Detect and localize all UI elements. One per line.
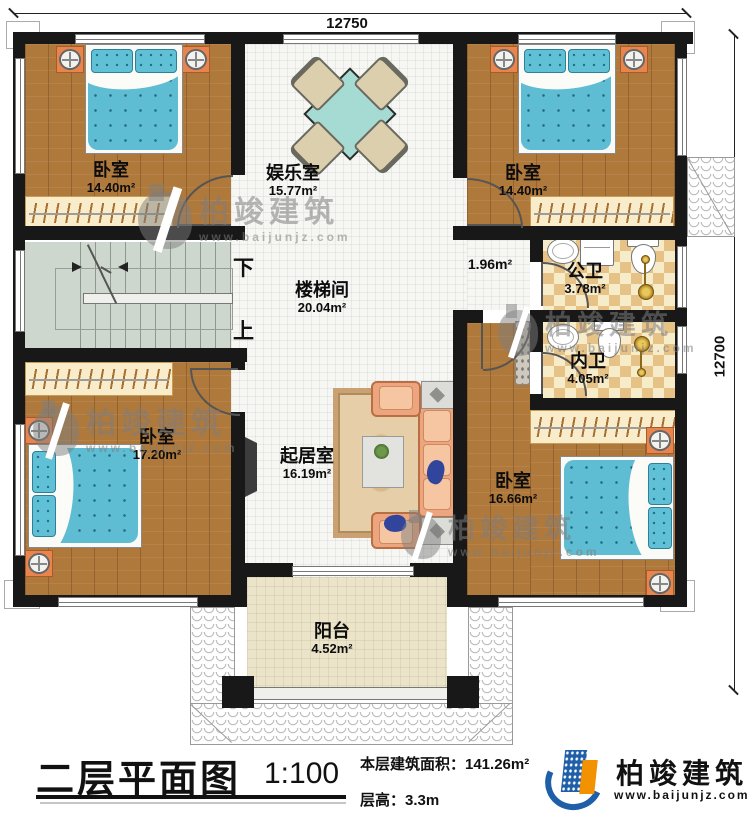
window [677, 246, 687, 308]
window [15, 424, 25, 556]
room-label-balcony: 阳台 4.52m² [272, 622, 392, 656]
title-underline-shadow [40, 802, 346, 804]
room-label-bedroom-br: 卧室 16.66m² [453, 472, 573, 506]
watermark: 柏竣建筑 www.baijunjz.com [138, 191, 351, 249]
sofa-cushion [423, 410, 451, 442]
side-table [421, 381, 454, 409]
room-name: 公卫 [545, 262, 625, 282]
wall-h3 [13, 348, 247, 362]
watermark-text: 柏竣建筑 [448, 516, 600, 543]
window [518, 34, 616, 44]
watermark: 柏竣建筑 www.baijunjz.com [33, 406, 238, 456]
dimension-line-right [734, 34, 735, 690]
window [58, 597, 198, 607]
room-area: 16.19m² [247, 467, 367, 481]
nightstand [182, 46, 210, 73]
watermark-text: 柏竣建筑 [199, 198, 351, 228]
room-name: 阳台 [272, 622, 392, 642]
lamp-icon [59, 49, 81, 70]
bed-bedroom-tl [85, 44, 183, 154]
nightstand [56, 46, 84, 73]
brand-name: 柏竣建筑 [616, 752, 748, 792]
nightstand [620, 46, 648, 73]
room-area: 4.05m² [548, 372, 628, 386]
pillow [568, 49, 610, 73]
room-area: 14.40m² [463, 184, 583, 198]
roof-tiles-balcony-bottom [190, 703, 513, 745]
room-label-bedroom-tr: 卧室 14.40m² [463, 164, 583, 198]
nightstand [490, 46, 518, 73]
balcony-railing [250, 687, 449, 700]
room-area: 3.78m² [545, 282, 625, 296]
sheet-fold [88, 73, 178, 94]
window [75, 34, 205, 44]
blanket [521, 73, 611, 150]
window [677, 58, 687, 156]
shower-stem [644, 262, 646, 284]
sofa-cushion [379, 386, 413, 410]
floor-vestibule-tile [467, 240, 530, 310]
dimension-top-label: 12750 [307, 15, 387, 32]
floor-plan-canvas: 12750 12700 下 上 [0, 0, 750, 818]
watermark-url: www.baijunjz.com [199, 231, 351, 243]
stair-down-label: 下 [233, 252, 254, 282]
toilet-icon [627, 234, 659, 274]
watermark-text: 柏竣建筑 [545, 312, 697, 339]
watermark-logo-icon [33, 406, 79, 456]
closet-bedroom-bl [25, 362, 173, 396]
room-name: 楼梯间 [262, 281, 382, 301]
dimension-right-label: 12700 [712, 325, 729, 389]
window [283, 34, 419, 44]
stair-up-label: 上 [233, 315, 254, 345]
room-area: 20.04m² [262, 301, 382, 315]
sheet-fold [57, 448, 78, 543]
room-area: 16.66m² [453, 492, 573, 506]
armchair [371, 381, 421, 417]
wall-h6 [530, 398, 687, 410]
wall-v2 [453, 32, 467, 178]
watermark-url: www.baijunjz.com [448, 546, 600, 558]
watermark-logo-icon [401, 515, 441, 559]
shower-valve [637, 368, 646, 377]
watermark-url: www.baijunjz.com [545, 342, 697, 354]
pillow [524, 49, 566, 73]
shower-icon [638, 284, 654, 300]
window [498, 597, 644, 607]
watermark: 柏竣建筑 www.baijunjz.com [498, 310, 697, 356]
room-label-hallway: 1.96m² [450, 257, 530, 272]
title-underline [36, 795, 346, 799]
room-name: 起居室 [247, 447, 367, 467]
lamp-icon [185, 49, 207, 70]
wall-connector-right [447, 563, 467, 607]
lamp-icon [28, 553, 50, 574]
lamp-icon [623, 49, 645, 70]
balcony-column [222, 676, 254, 708]
room-name: 卧室 [51, 161, 171, 181]
floor-area-line: 本层建筑面积：141.26m² [360, 753, 529, 774]
lamp-icon [493, 49, 515, 70]
nightstand [25, 550, 53, 577]
room-label-public-bath: 公卫 3.78m² [545, 262, 625, 296]
sliding-door [292, 566, 414, 576]
shower-valve [641, 255, 650, 264]
blanket [88, 73, 178, 150]
wall-h2 [453, 226, 687, 240]
nightstand [646, 570, 674, 597]
room-area: 1.96m² [450, 257, 530, 272]
room-name: 卧室 [453, 472, 573, 492]
pillow [91, 49, 133, 73]
room-name: 卧室 [463, 164, 583, 184]
watermark-logo-icon [138, 191, 192, 249]
wall-connector-left [233, 563, 247, 607]
plant-icon [374, 444, 389, 459]
pillow [648, 507, 672, 549]
wall-v1 [231, 32, 245, 175]
pillow [135, 49, 177, 73]
sheet-fold [521, 73, 611, 94]
watermark-url: www.baijunjz.com [86, 442, 238, 454]
brand-logo-icon [545, 746, 611, 806]
scale-label: 1:100 [264, 757, 339, 791]
watermark: 柏竣建筑 www.baijunjz.com [401, 515, 600, 559]
lamp-icon [649, 573, 671, 594]
window [15, 250, 25, 332]
wall-v5a [530, 240, 543, 262]
closet-bedroom-tr [530, 196, 674, 230]
balcony-column [447, 676, 479, 708]
blanket [57, 448, 138, 543]
floor-height-line: 层高：3.3m [360, 789, 439, 810]
dimension-line-top [13, 13, 687, 14]
room-area: 4.52m² [272, 642, 392, 656]
pillow [648, 463, 672, 505]
window [15, 58, 25, 174]
room-label-inner-bath: 内卫 4.05m² [548, 352, 628, 386]
room-label-living: 起居室 16.19m² [247, 447, 367, 481]
sheet-fold [624, 460, 645, 555]
room-label-stairwell: 楼梯间 20.04m² [262, 281, 382, 315]
room-name: 娱乐室 [233, 164, 353, 184]
watermark-text: 柏竣建筑 [86, 409, 238, 439]
bed-bedroom-tr [518, 44, 616, 154]
watermark-logo-icon [498, 310, 538, 356]
stair-handrail [83, 293, 233, 304]
stair-arrow-icon [118, 262, 128, 272]
pillow [32, 495, 56, 537]
lamp-icon [649, 430, 671, 451]
stair-arrow-icon [72, 262, 82, 272]
brand-url: www.baijunjz.com [614, 788, 750, 802]
wall-h4 [467, 310, 483, 323]
nightstand [646, 427, 674, 454]
